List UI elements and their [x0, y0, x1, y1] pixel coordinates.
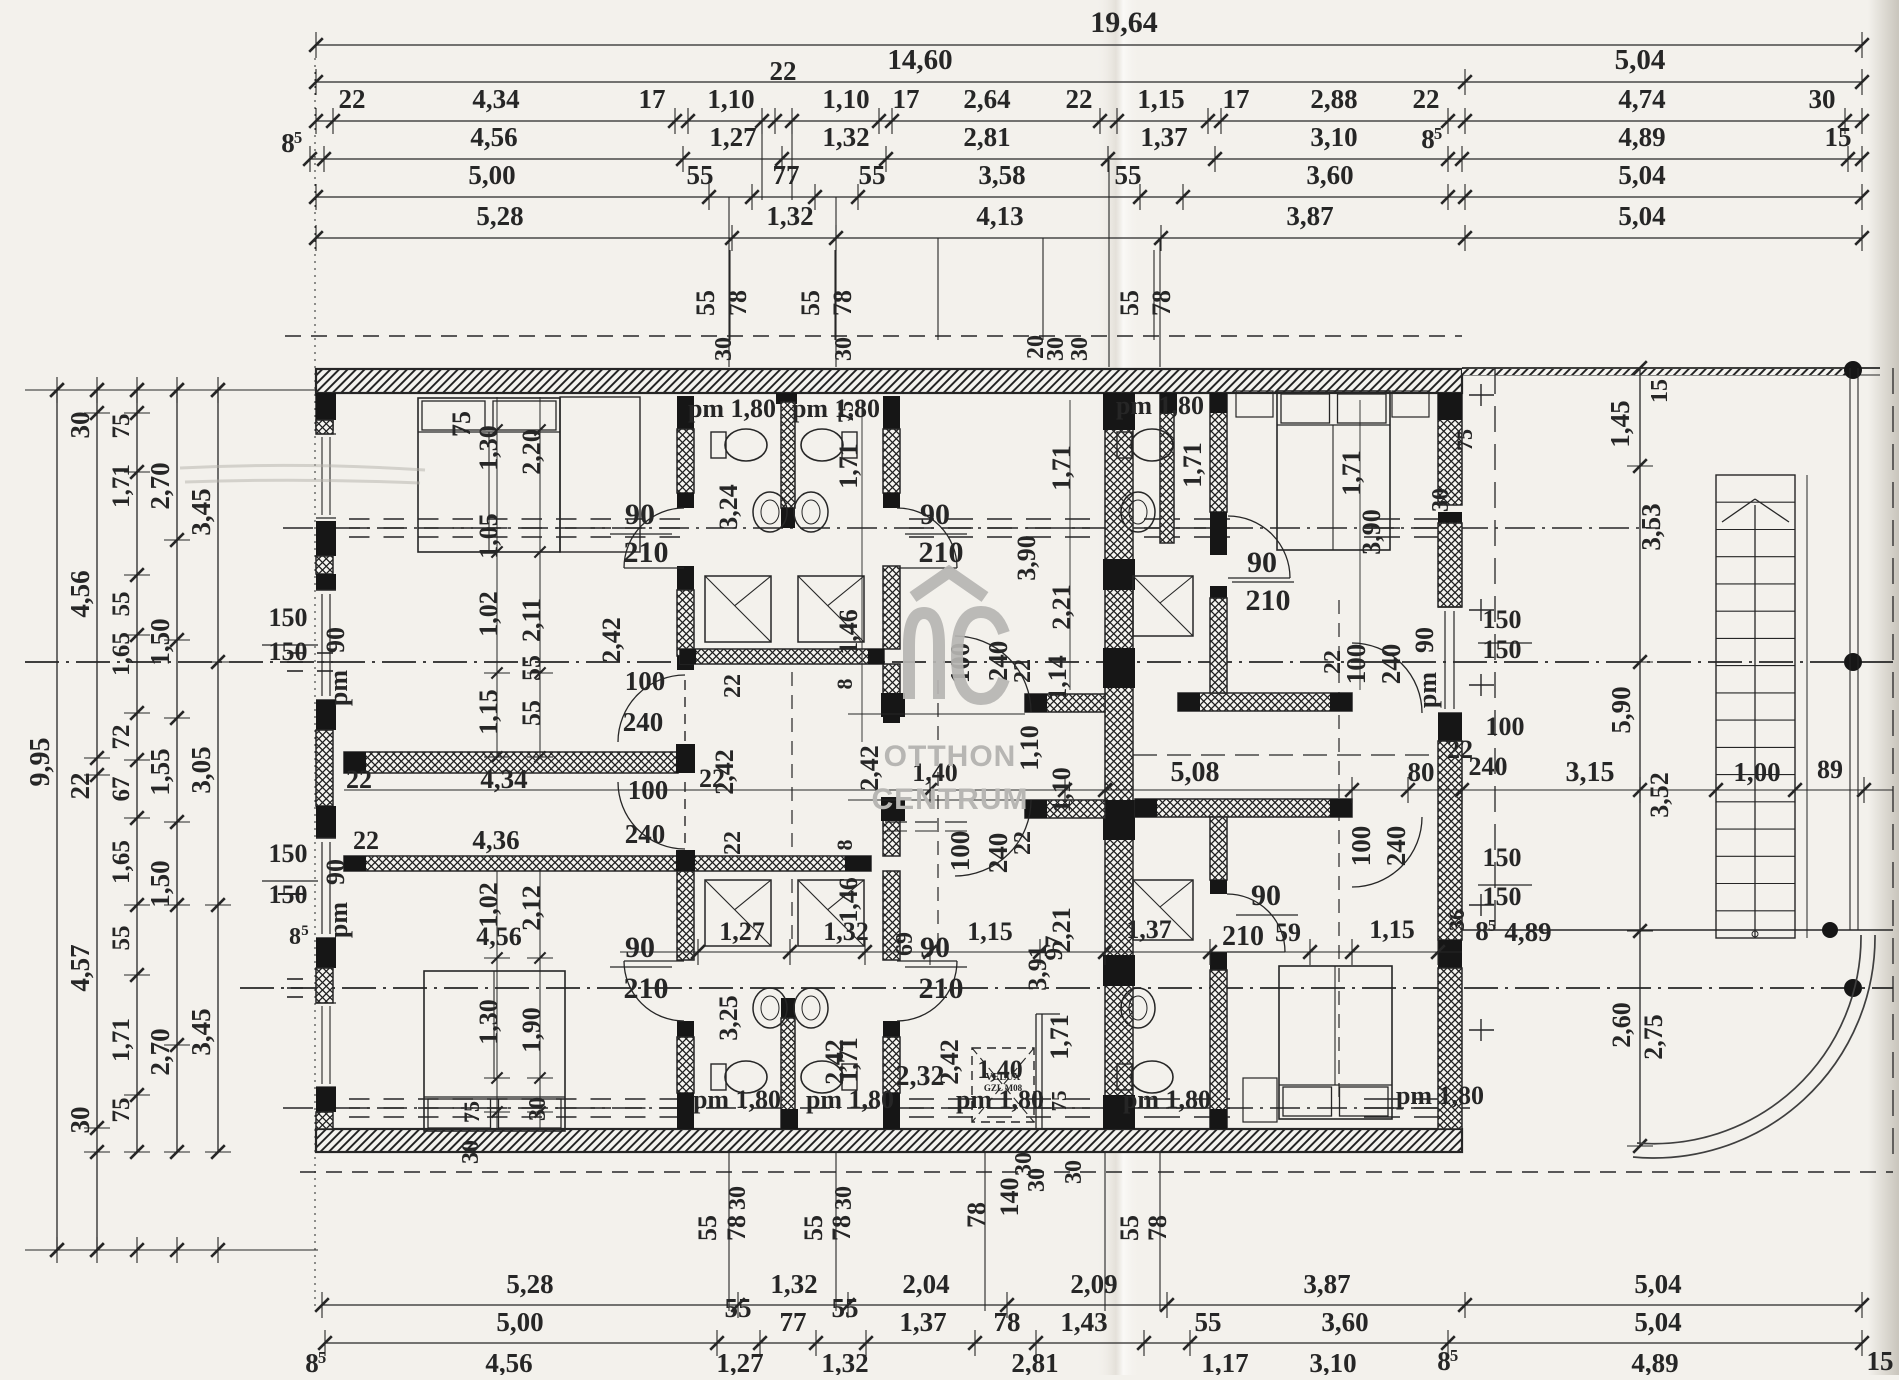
svg-text:8: 8 — [281, 128, 295, 158]
svg-text:22: 22 — [339, 84, 366, 114]
svg-text:1,43: 1,43 — [1060, 1307, 1107, 1337]
svg-text:1,32: 1,32 — [823, 917, 869, 946]
svg-text:150: 150 — [269, 603, 308, 632]
svg-text:8: 8 — [289, 924, 301, 950]
svg-text:36: 36 — [1444, 909, 1469, 931]
svg-text:1,32: 1,32 — [821, 1348, 868, 1375]
svg-text:3,90: 3,90 — [1357, 509, 1386, 555]
svg-text:140: 140 — [995, 1178, 1024, 1217]
svg-text:1,71: 1,71 — [834, 443, 863, 489]
svg-text:55: 55 — [859, 160, 886, 190]
svg-text:1,71: 1,71 — [834, 1037, 863, 1083]
svg-text:210: 210 — [624, 972, 669, 1005]
svg-text:1,05: 1,05 — [474, 513, 503, 559]
svg-text:75: 75 — [833, 401, 858, 423]
svg-text:210: 210 — [1246, 584, 1291, 617]
svg-text:1,90: 1,90 — [517, 1007, 546, 1053]
svg-text:55: 55 — [725, 1293, 752, 1323]
svg-text:72: 72 — [108, 725, 135, 750]
svg-text:8: 8 — [305, 1348, 319, 1375]
svg-text:1,27: 1,27 — [716, 1348, 763, 1375]
svg-text:22: 22 — [1066, 84, 1093, 114]
svg-text:1,71: 1,71 — [108, 1018, 135, 1062]
svg-text:2,60: 2,60 — [1607, 1002, 1636, 1048]
svg-text:55: 55 — [687, 160, 714, 190]
svg-text:1,02: 1,02 — [474, 591, 503, 637]
svg-text:240: 240 — [623, 707, 664, 737]
svg-text:22: 22 — [353, 826, 379, 855]
svg-text:89: 89 — [1817, 755, 1843, 784]
svg-text:1,50: 1,50 — [145, 618, 175, 665]
svg-text:2,75: 2,75 — [1639, 1014, 1668, 1060]
svg-text:1,27: 1,27 — [719, 917, 765, 946]
svg-text:1,65: 1,65 — [108, 632, 135, 676]
svg-text:5: 5 — [301, 923, 308, 939]
svg-text:1,14: 1,14 — [1043, 655, 1072, 701]
svg-text:5,08: 5,08 — [1171, 757, 1220, 788]
svg-text:4,89: 4,89 — [1618, 122, 1665, 152]
svg-text:pm: pm — [324, 670, 353, 706]
svg-text:1,71: 1,71 — [108, 464, 135, 508]
svg-text:30: 30 — [525, 1097, 551, 1121]
svg-text:3,60: 3,60 — [1321, 1307, 1368, 1337]
svg-text:1,30: 1,30 — [474, 999, 503, 1045]
svg-text:2,64: 2,64 — [963, 84, 1010, 114]
svg-text:pm 1,80: pm 1,80 — [1396, 1081, 1484, 1110]
svg-text:240: 240 — [1376, 644, 1406, 685]
svg-text:5,04: 5,04 — [1618, 160, 1665, 190]
svg-text:3,53: 3,53 — [1636, 503, 1666, 550]
svg-text:150: 150 — [269, 839, 308, 868]
svg-text:15: 15 — [1647, 379, 1673, 403]
svg-text:1,17: 1,17 — [1201, 1348, 1248, 1375]
svg-text:4,56: 4,56 — [65, 570, 95, 617]
svg-text:5,00: 5,00 — [468, 160, 515, 190]
svg-text:240: 240 — [983, 641, 1013, 682]
svg-text:55: 55 — [108, 592, 135, 617]
svg-text:5,28: 5,28 — [476, 201, 523, 231]
svg-text:75: 75 — [459, 1101, 484, 1123]
svg-text:2,81: 2,81 — [1011, 1348, 1058, 1375]
svg-text:59: 59 — [1275, 918, 1301, 947]
svg-text:75: 75 — [108, 1098, 135, 1123]
svg-text:55: 55 — [1115, 290, 1144, 316]
svg-text:pm 1,80: pm 1,80 — [688, 394, 776, 423]
svg-text:22: 22 — [65, 773, 95, 800]
svg-text:3,87: 3,87 — [1286, 201, 1333, 231]
svg-text:20: 20 — [1023, 335, 1049, 359]
svg-text:30: 30 — [1067, 337, 1093, 361]
svg-text:77: 77 — [773, 160, 800, 190]
svg-text:2,21: 2,21 — [1047, 584, 1076, 630]
svg-text:210: 210 — [919, 536, 964, 569]
svg-text:78: 78 — [1147, 290, 1176, 316]
svg-text:55: 55 — [693, 1215, 722, 1241]
svg-text:100: 100 — [1346, 826, 1376, 867]
svg-text:1,02: 1,02 — [474, 882, 503, 928]
svg-text:78: 78 — [723, 290, 752, 316]
svg-text:4,13: 4,13 — [976, 201, 1023, 231]
svg-text:240: 240 — [625, 819, 666, 849]
svg-text:5: 5 — [1434, 124, 1442, 143]
svg-text:5,28: 5,28 — [506, 1269, 553, 1299]
svg-text:1,40: 1,40 — [977, 1055, 1023, 1084]
svg-text:1,45: 1,45 — [1605, 400, 1635, 447]
svg-text:55: 55 — [517, 700, 546, 726]
svg-text:78: 78 — [1143, 1215, 1172, 1241]
svg-text:100: 100 — [1341, 644, 1371, 685]
svg-text:1,10: 1,10 — [707, 84, 754, 114]
svg-text:2,70: 2,70 — [145, 462, 175, 509]
svg-text:8: 8 — [1437, 1346, 1451, 1375]
svg-text:pm 1,80: pm 1,80 — [693, 1085, 781, 1114]
svg-text:2,09: 2,09 — [1070, 1269, 1117, 1299]
svg-text:30: 30 — [65, 412, 95, 439]
svg-text:75: 75 — [447, 411, 476, 437]
svg-text:1,71: 1,71 — [1178, 442, 1207, 488]
svg-text:100: 100 — [945, 831, 975, 872]
svg-text:30: 30 — [1428, 488, 1454, 512]
svg-text:1,71: 1,71 — [1337, 450, 1366, 496]
svg-text:90: 90 — [1251, 879, 1281, 912]
svg-text:2,32: 2,32 — [896, 1061, 945, 1092]
svg-text:30: 30 — [65, 1107, 95, 1134]
svg-text:1,55: 1,55 — [145, 748, 175, 795]
svg-text:150: 150 — [1483, 882, 1522, 911]
svg-text:1,65: 1,65 — [108, 840, 135, 884]
svg-text:55: 55 — [832, 1293, 859, 1323]
svg-text:3,58: 3,58 — [978, 160, 1025, 190]
svg-text:1,32: 1,32 — [766, 201, 813, 231]
svg-text:1,37: 1,37 — [899, 1307, 946, 1337]
svg-text:210: 210 — [919, 972, 964, 1005]
svg-text:150: 150 — [1483, 635, 1522, 664]
svg-text:2,70: 2,70 — [145, 1028, 175, 1075]
svg-text:1,27: 1,27 — [709, 122, 756, 152]
svg-text:pm 1,80: pm 1,80 — [1116, 391, 1204, 420]
svg-text:3,52: 3,52 — [1645, 772, 1674, 818]
svg-text:90: 90 — [321, 627, 350, 653]
svg-text:55: 55 — [108, 926, 135, 951]
svg-text:75: 75 — [1047, 1091, 1071, 1112]
svg-text:30: 30 — [831, 1186, 857, 1210]
svg-text:1,15: 1,15 — [474, 689, 503, 735]
svg-text:90: 90 — [1410, 627, 1439, 653]
svg-text:5: 5 — [318, 1348, 326, 1367]
svg-text:3,60: 3,60 — [1306, 160, 1353, 190]
svg-text:3,15: 3,15 — [1566, 757, 1615, 788]
svg-text:5,90: 5,90 — [1606, 686, 1636, 733]
svg-text:1,15: 1,15 — [1137, 84, 1184, 114]
svg-text:1,00: 1,00 — [1733, 757, 1780, 787]
svg-text:pm: pm — [1413, 672, 1442, 708]
svg-text:1,37: 1,37 — [1140, 122, 1187, 152]
svg-text:1,15: 1,15 — [967, 917, 1013, 946]
svg-text:240: 240 — [1469, 752, 1508, 781]
svg-text:210: 210 — [624, 536, 669, 569]
svg-text:OTTHON: OTTHON — [884, 740, 1017, 773]
svg-text:75: 75 — [108, 414, 135, 439]
svg-text:8: 8 — [1475, 916, 1489, 946]
svg-text:9,95: 9,95 — [25, 738, 56, 787]
svg-text:1,32: 1,32 — [822, 122, 869, 152]
svg-text:5,04: 5,04 — [1634, 1269, 1681, 1299]
svg-text:pm 1,80: pm 1,80 — [806, 1085, 894, 1114]
svg-text:5: 5 — [294, 128, 302, 147]
svg-text:1,32: 1,32 — [770, 1269, 817, 1299]
svg-text:1,46: 1,46 — [834, 609, 863, 655]
svg-text:240: 240 — [983, 833, 1013, 874]
svg-text:30: 30 — [458, 1140, 484, 1164]
svg-text:pm: pm — [324, 902, 353, 938]
svg-text:15: 15 — [1825, 122, 1852, 152]
svg-text:1,15: 1,15 — [1369, 915, 1415, 944]
svg-text:75: 75 — [1452, 429, 1477, 451]
svg-text:8: 8 — [1421, 124, 1435, 154]
svg-text:4,56: 4,56 — [485, 1348, 532, 1375]
svg-text:19,64: 19,64 — [1090, 6, 1158, 39]
svg-text:4,34: 4,34 — [472, 84, 519, 114]
svg-text:55: 55 — [691, 290, 720, 316]
svg-text:22: 22 — [770, 56, 797, 86]
svg-text:90: 90 — [920, 498, 950, 531]
svg-text:4,57: 4,57 — [65, 944, 95, 991]
svg-text:22: 22 — [720, 674, 746, 698]
svg-text:3,90: 3,90 — [1012, 535, 1041, 581]
svg-text:5,04: 5,04 — [1634, 1307, 1681, 1337]
svg-text:80: 80 — [1408, 757, 1435, 787]
svg-text:30: 30 — [1809, 84, 1836, 114]
svg-text:90: 90 — [625, 498, 655, 531]
svg-text:55: 55 — [1115, 1215, 1144, 1241]
svg-text:2,88: 2,88 — [1310, 84, 1357, 114]
svg-text:22: 22 — [699, 764, 725, 793]
svg-text:4,74: 4,74 — [1618, 84, 1665, 114]
svg-text:90: 90 — [1247, 546, 1277, 579]
svg-text:3,25: 3,25 — [714, 995, 743, 1041]
svg-text:1,37: 1,37 — [1126, 915, 1172, 944]
svg-text:55: 55 — [799, 1215, 828, 1241]
svg-text:150: 150 — [1483, 605, 1522, 634]
svg-text:8: 8 — [832, 679, 857, 690]
svg-text:1,46: 1,46 — [834, 877, 863, 923]
svg-text:3,05: 3,05 — [186, 746, 216, 793]
svg-text:15: 15 — [1867, 1346, 1894, 1375]
svg-text:5,04: 5,04 — [1615, 44, 1666, 76]
svg-text:1,71: 1,71 — [1045, 1014, 1074, 1060]
svg-text:5: 5 — [1450, 1346, 1458, 1365]
svg-text:17: 17 — [893, 84, 920, 114]
svg-text:3,45: 3,45 — [186, 488, 216, 535]
svg-text:22: 22 — [1413, 84, 1440, 114]
svg-text:30: 30 — [831, 337, 857, 361]
svg-text:55: 55 — [796, 290, 825, 316]
svg-text:30: 30 — [711, 337, 737, 361]
svg-text:1,71: 1,71 — [1047, 445, 1076, 491]
svg-text:4,56: 4,56 — [476, 922, 522, 951]
svg-text:17: 17 — [639, 84, 666, 114]
svg-text:14,60: 14,60 — [887, 44, 952, 76]
svg-text:1,30: 1,30 — [474, 425, 503, 471]
svg-text:100: 100 — [1486, 712, 1525, 741]
svg-text:78: 78 — [962, 1202, 991, 1228]
svg-text:22: 22 — [720, 831, 746, 855]
svg-text:67: 67 — [108, 777, 135, 802]
svg-text:3,87: 3,87 — [1303, 1269, 1350, 1299]
svg-text:210: 210 — [1222, 921, 1264, 952]
svg-text:100: 100 — [625, 666, 666, 696]
svg-text:2,11: 2,11 — [517, 598, 546, 642]
svg-text:30: 30 — [1024, 1168, 1050, 1192]
svg-text:2,20: 2,20 — [517, 429, 546, 475]
svg-text:78: 78 — [828, 290, 857, 316]
svg-text:3,24: 3,24 — [714, 484, 743, 530]
svg-text:150: 150 — [1483, 843, 1522, 872]
svg-text:78: 78 — [827, 1215, 856, 1241]
svg-text:55: 55 — [1115, 160, 1142, 190]
svg-text:pm 1,80: pm 1,80 — [1123, 1085, 1211, 1114]
svg-text:5,04: 5,04 — [1618, 201, 1665, 231]
svg-text:2,42: 2,42 — [597, 617, 626, 663]
svg-text:1,10: 1,10 — [822, 84, 869, 114]
svg-text:240: 240 — [1381, 826, 1411, 867]
svg-text:2,81: 2,81 — [963, 122, 1010, 152]
svg-text:4,36: 4,36 — [472, 825, 519, 855]
svg-text:55: 55 — [1195, 1307, 1222, 1337]
svg-text:4,89: 4,89 — [1631, 1348, 1678, 1375]
svg-text:4,89: 4,89 — [1504, 917, 1551, 947]
svg-text:3,10: 3,10 — [1309, 1348, 1356, 1375]
svg-text:30: 30 — [1061, 1160, 1087, 1184]
svg-text:77: 77 — [780, 1307, 807, 1337]
svg-text:78: 78 — [994, 1307, 1021, 1337]
svg-text:3,45: 3,45 — [186, 1008, 216, 1055]
svg-text:8: 8 — [832, 840, 857, 851]
svg-text:1,50: 1,50 — [145, 860, 175, 907]
svg-text:pm 1,80: pm 1,80 — [956, 1085, 1044, 1114]
svg-text:78: 78 — [722, 1215, 751, 1241]
svg-text:17: 17 — [1223, 84, 1250, 114]
svg-text:1,10: 1,10 — [1015, 725, 1044, 771]
svg-text:22: 22 — [1010, 659, 1036, 683]
svg-text:4,56: 4,56 — [470, 122, 517, 152]
svg-text:22: 22 — [1010, 831, 1036, 855]
svg-text:55: 55 — [517, 655, 546, 681]
svg-text:3,10: 3,10 — [1310, 122, 1357, 152]
svg-text:5,00: 5,00 — [496, 1307, 543, 1337]
svg-text:90: 90 — [625, 931, 655, 964]
svg-text:CENTRUM: CENTRUM — [872, 783, 1029, 816]
svg-text:2,04: 2,04 — [902, 1269, 949, 1299]
